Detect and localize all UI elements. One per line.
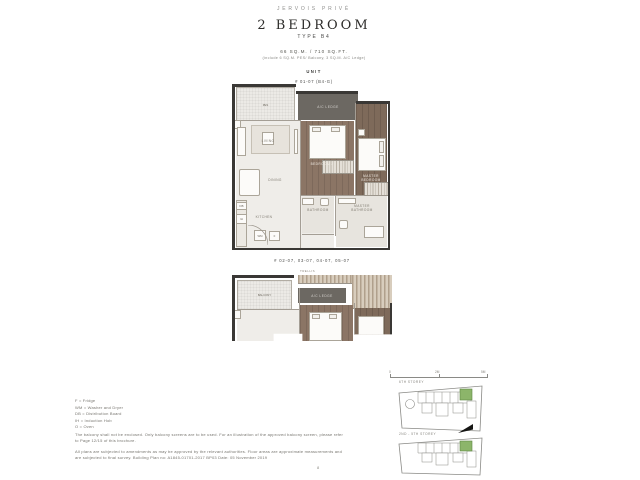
unit-type: TYPE B4	[214, 34, 414, 40]
interior-wall	[237, 309, 299, 310]
master-bathroom-wc	[339, 220, 348, 229]
exterior-wall	[232, 275, 235, 341]
balcony-disclaimer: The balcony shall not be enclosed. Only …	[75, 432, 347, 444]
unit-area: 66 SQ.M. / 710 SQ.FT.	[214, 49, 414, 54]
room-balcony: BALCONY	[237, 280, 292, 310]
trellis-block	[352, 275, 392, 309]
bed-pillow	[312, 127, 321, 132]
unit-label: UNIT	[214, 69, 414, 74]
page-header: JERVOIS PRIVÉ 2 BEDROOM TYPE B4 66 SQ.M.…	[214, 0, 414, 84]
room-balcony-label: BALCONY	[258, 293, 271, 297]
highlighted-unit	[460, 389, 472, 400]
page-number: 8	[317, 465, 319, 470]
room-ac-ledge-label: A/C LEDGE	[317, 105, 339, 109]
room-dining-label: DINING	[258, 178, 292, 182]
unit-area-note: (include 6 SQ.M. PES/ Balcony, 3 SQ.M. A…	[214, 56, 414, 60]
exterior-wall	[296, 91, 358, 94]
interior-wall	[236, 120, 300, 121]
room-ac-ledge-lower-label: A/C LEDGE	[311, 294, 333, 298]
fridge-box: F	[269, 231, 280, 241]
master-bed-lower	[358, 316, 384, 341]
exterior-wall	[390, 303, 393, 341]
room-bathroom-label: BATHROOM	[302, 208, 334, 212]
legend-item-fridge: F = Fridge	[75, 398, 95, 403]
exterior-wall	[232, 248, 390, 251]
scale-bar-tick	[439, 374, 440, 378]
nightstand	[358, 129, 365, 136]
bed-pillow	[379, 141, 384, 153]
floor-plan-lower: BALCONY A/C LEDGE	[232, 275, 392, 341]
bed-pillow	[312, 314, 320, 319]
interior-wall	[335, 196, 336, 236]
key-plan-2-label: 2ND - 5TH STOREY	[399, 432, 436, 436]
legend-item-oven: O = Oven	[75, 424, 94, 429]
legend-item-ih: IH = Induction Hob	[75, 418, 112, 423]
room-bedroom2-label: BEDROOM 2	[300, 162, 344, 166]
plans-disclaimer: All plans are subjected to amendments as…	[75, 449, 347, 461]
exterior-wall	[232, 275, 294, 278]
room-living-label: LIVING	[236, 139, 300, 143]
room-ac-ledge-lower: A/C LEDGE	[298, 288, 346, 303]
floor-plan-upper: PES A/C LEDGE DB IH WM	[232, 84, 390, 252]
exterior-wall	[388, 101, 391, 250]
bathroom-sink	[302, 198, 314, 205]
page-title: 2 BEDROOM	[214, 18, 414, 33]
dining-table	[239, 169, 260, 196]
room-master-bedroom-label: MASTER BEDROOM	[354, 174, 388, 182]
bed-pillow	[379, 155, 384, 167]
brand-name: JERVOIS PRIVÉ	[214, 6, 414, 12]
north-arrow-icon	[458, 424, 473, 433]
interior-wall	[302, 234, 334, 235]
room-kitchen-label: KITCHEN	[244, 215, 284, 219]
brochure-page: JERVOIS PRIVÉ 2 BEDROOM TYPE B4 66 SQ.M.…	[0, 0, 640, 480]
bed-pillow	[331, 127, 340, 132]
master-bathroom-shower	[364, 226, 384, 238]
key-plan-2	[397, 437, 485, 477]
living-floor-lower	[237, 310, 299, 341]
exterior-wall	[232, 84, 296, 87]
interior-wall	[355, 103, 356, 196]
bathroom-wc	[320, 198, 329, 206]
scale-bar-tick	[487, 374, 488, 378]
legend-item-db: DB = Distribution Board	[75, 411, 122, 416]
lower-plan-caption: # 02-07, 03-07, 04-07, 05-07	[232, 258, 392, 263]
room-pes: PES	[236, 87, 295, 122]
marker-ih: IH	[240, 217, 243, 221]
room-master-bathroom-label: MASTER BATHROOM	[344, 204, 380, 212]
room-pes-label: PES	[263, 103, 269, 107]
exterior-wall	[356, 101, 390, 104]
marker-db: DB	[240, 204, 244, 208]
bed-pillow	[329, 314, 337, 319]
door-swing-arc	[248, 225, 268, 245]
scale-bar-tick	[390, 374, 391, 378]
trellis-label: TRELLIS	[300, 269, 315, 273]
scale-label-end: 5M	[481, 370, 485, 374]
highlighted-unit	[460, 441, 472, 451]
legend-item-washer: WM = Washer and Dryer	[75, 405, 123, 410]
interior-wall	[299, 288, 300, 341]
room-ac-ledge: A/C LEDGE	[298, 93, 358, 120]
pool-icon	[406, 400, 415, 409]
exterior-wall	[232, 84, 235, 250]
interior-wall	[354, 303, 355, 341]
distribution-board-box: DB	[236, 202, 247, 210]
marker-f: F	[274, 234, 276, 238]
master-wardrobe	[364, 182, 389, 196]
